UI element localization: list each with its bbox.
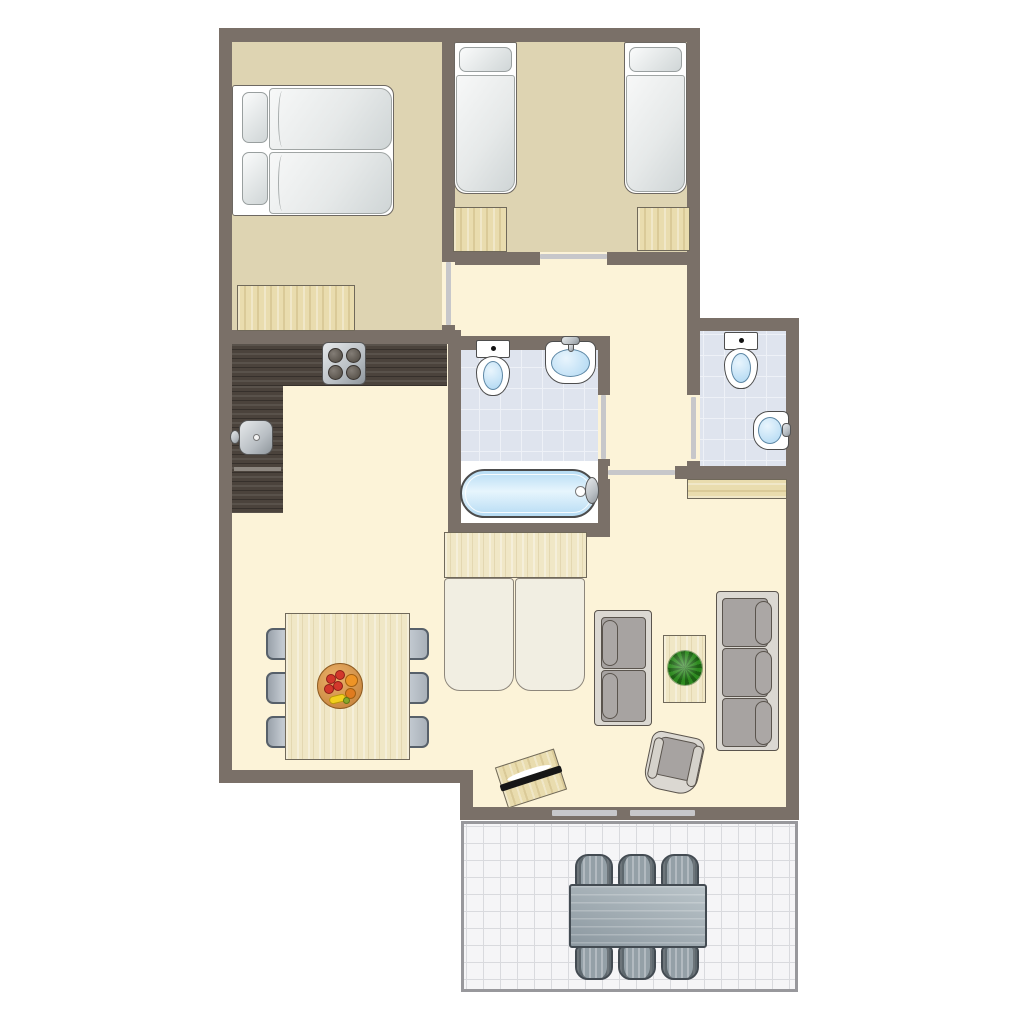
bathtub-rim bbox=[465, 474, 592, 513]
wall-bathroom-right-a bbox=[598, 336, 610, 395]
pillow bbox=[242, 92, 268, 143]
sofa-back-cushion bbox=[755, 651, 772, 695]
corner-washbasin-faucet bbox=[782, 423, 791, 437]
hallway-floor bbox=[454, 252, 687, 345]
toilet-flush-button bbox=[739, 338, 744, 343]
wardrobe bbox=[237, 285, 355, 331]
outdoor-chair bbox=[575, 854, 613, 888]
fruit-orange bbox=[345, 674, 358, 687]
pillow bbox=[242, 152, 268, 205]
toilet-bowl-inner bbox=[731, 353, 751, 383]
stove bbox=[322, 342, 366, 385]
plant bbox=[668, 651, 702, 685]
wall-bathroom-left bbox=[448, 336, 461, 537]
wall-vestibule-bottom-b bbox=[675, 466, 687, 479]
two-seat-sofa bbox=[594, 610, 652, 726]
corner-washbasin-bowl bbox=[758, 417, 782, 444]
wall-far-right bbox=[786, 318, 799, 820]
fruit-red bbox=[335, 670, 345, 680]
duvet bbox=[269, 152, 392, 214]
kitchen-sink-drain bbox=[253, 434, 260, 441]
living-room-door bbox=[608, 470, 675, 475]
burner bbox=[328, 348, 343, 363]
sofa-bed-mattress bbox=[515, 578, 585, 691]
wall-top bbox=[219, 28, 700, 42]
duvet-fold bbox=[278, 155, 288, 211]
sofa-bed-cabinet bbox=[444, 532, 587, 578]
outdoor-table bbox=[569, 884, 707, 948]
nightstand bbox=[637, 207, 690, 251]
sofa-bed-mattress bbox=[444, 578, 514, 691]
sofa-back-cushion bbox=[755, 701, 772, 745]
sideboard bbox=[687, 479, 787, 499]
duvet bbox=[269, 88, 392, 150]
wc-door bbox=[691, 397, 696, 459]
wall-bottom-left bbox=[219, 770, 473, 783]
nightstand bbox=[453, 207, 507, 252]
outdoor-chair bbox=[661, 854, 699, 888]
wall-bedroom2-bottom-b bbox=[607, 252, 700, 265]
wall-wc-top bbox=[687, 318, 799, 331]
outdoor-chair bbox=[661, 946, 699, 980]
duvet-fold bbox=[278, 91, 288, 147]
fruit-green bbox=[343, 697, 350, 704]
sofa-back-cushion bbox=[755, 601, 772, 645]
bedroom-2-door bbox=[540, 254, 607, 259]
bathtub-faucet bbox=[585, 477, 599, 504]
pillow bbox=[459, 47, 512, 72]
toilet-flush-button bbox=[491, 346, 496, 351]
burner bbox=[346, 348, 361, 363]
kitchen-faucet bbox=[230, 430, 240, 444]
outdoor-chair bbox=[575, 946, 613, 980]
sofa-back-cushion bbox=[602, 673, 618, 719]
bathroom-door bbox=[601, 395, 606, 459]
outdoor-chair bbox=[618, 946, 656, 980]
floor-plan bbox=[0, 0, 1024, 1024]
duvet bbox=[626, 75, 685, 192]
washbasin-bowl bbox=[551, 349, 590, 377]
wall-wc-bottom bbox=[687, 466, 799, 479]
wall-bedroom2-bottom-a bbox=[454, 252, 540, 265]
vestibule-floor bbox=[610, 340, 687, 480]
outdoor-chair bbox=[618, 854, 656, 888]
fruit-bowl bbox=[317, 663, 363, 709]
bedroom-1-door bbox=[446, 262, 451, 325]
three-seat-sofa bbox=[716, 591, 779, 751]
burner bbox=[328, 365, 343, 380]
washbasin-faucet-spout bbox=[568, 344, 574, 352]
duvet bbox=[456, 75, 515, 192]
kitchen-counter-divider bbox=[234, 467, 281, 471]
toilet-bowl-inner bbox=[483, 361, 503, 390]
burner bbox=[346, 365, 361, 380]
terrace-sliding-door-left bbox=[552, 810, 617, 816]
sofa-back-cushion bbox=[602, 620, 618, 666]
fruit-red bbox=[333, 681, 343, 691]
terrace-sliding-door-right bbox=[630, 810, 695, 816]
wall-left bbox=[219, 28, 232, 783]
pillow bbox=[629, 47, 682, 72]
